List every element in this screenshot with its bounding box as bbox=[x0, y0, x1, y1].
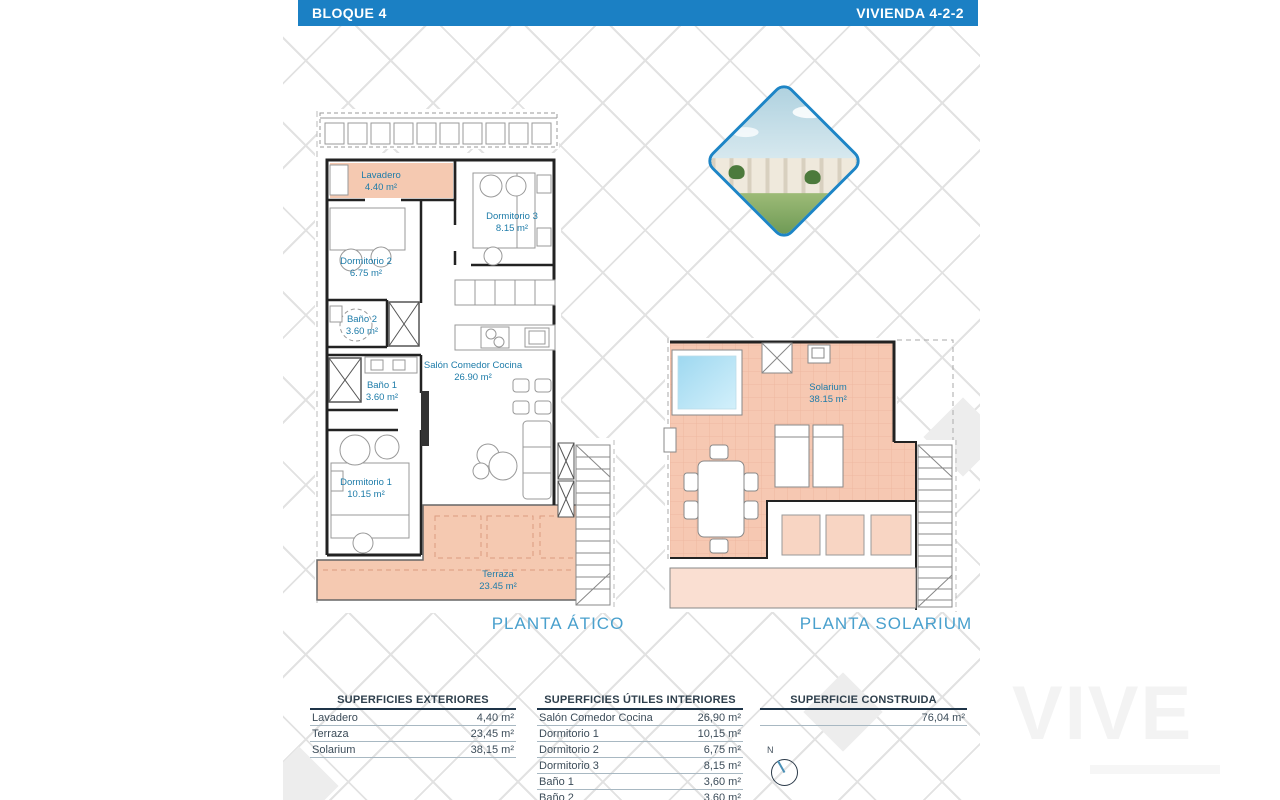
room-name: Dormitorio 3 bbox=[486, 211, 538, 222]
table-row: Terraza23,45 m² bbox=[310, 726, 516, 742]
table-row: Dormitorio 26,75 m² bbox=[537, 742, 743, 758]
table-superficies-interiores: SUPERFICIES ÚTILES INTERIORES Salón Come… bbox=[537, 694, 743, 800]
table-superficies-exteriores: SUPERFICIES EXTERIORES Lavadero4,40 m² T… bbox=[310, 694, 516, 758]
room-name: Dormitorio 1 bbox=[340, 477, 392, 488]
room-label-dormitorio2: Dormitorio 2 6.75 m² bbox=[340, 256, 392, 280]
table-title: SUPERFICIES ÚTILES INTERIORES bbox=[537, 694, 743, 710]
photo-cloud bbox=[732, 126, 758, 136]
lower-terrace-strip bbox=[670, 568, 916, 608]
room-area: 3.60 m² bbox=[346, 326, 378, 337]
room-area: 38.15 m² bbox=[809, 394, 847, 405]
room-area: 8.15 m² bbox=[496, 223, 528, 234]
outdoor-shower bbox=[762, 343, 792, 373]
room-area: 23.45 m² bbox=[479, 581, 517, 592]
compass-needle-icon bbox=[771, 759, 798, 786]
table-row: Baño 13,60 m² bbox=[537, 774, 743, 790]
room-area: 4.40 m² bbox=[365, 182, 397, 193]
room-label-salon: Salón Comedor Cocina 26.90 m² bbox=[424, 360, 522, 384]
photo-palm-tree bbox=[805, 170, 821, 184]
room-area: 6.75 m² bbox=[350, 268, 382, 279]
table-title: SUPERFICIES EXTERIORES bbox=[310, 694, 516, 710]
photo-palm-tree bbox=[729, 164, 745, 178]
pool bbox=[672, 350, 742, 415]
table-title: SUPERFICIE CONSTRUIDA bbox=[760, 694, 967, 710]
table-row: Dormitorio 110,15 m² bbox=[537, 726, 743, 742]
sun-loungers bbox=[775, 425, 843, 487]
atico-plan-title: PLANTA ÁTICO bbox=[492, 614, 625, 634]
room-area: 3.60 m² bbox=[366, 392, 398, 403]
title-bar: BLOQUE 4 VIVIENDA 4-2-2 bbox=[298, 0, 978, 26]
room-name: Baño 1 bbox=[367, 380, 397, 391]
table-row: 76,04 m² bbox=[760, 710, 967, 726]
room-label-banyo2: Baño 2 3.60 m² bbox=[346, 314, 378, 338]
planters bbox=[782, 515, 911, 555]
table-row: Dormitorio 38,15 m² bbox=[537, 758, 743, 774]
table-row: Baño 23,60 m² bbox=[537, 790, 743, 800]
pergola-backing bbox=[317, 109, 559, 149]
room-label-dormitorio3: Dormitorio 3 8.15 m² bbox=[486, 211, 538, 235]
ac-unit bbox=[664, 428, 676, 452]
tv-unit bbox=[421, 391, 429, 446]
room-name: Salón Comedor Cocina bbox=[424, 360, 522, 371]
room-label-terraza: Terraza 23.45 m² bbox=[479, 569, 517, 593]
room-label-solarium: Solarium 38.15 m² bbox=[809, 382, 847, 406]
compass-north-label: N bbox=[767, 745, 774, 755]
room-area: 26.90 m² bbox=[454, 372, 492, 383]
table-row: Solarium38,15 m² bbox=[310, 742, 516, 758]
room-name: Baño 2 bbox=[347, 314, 377, 325]
room-name: Solarium bbox=[809, 382, 847, 393]
solarium-floorplan bbox=[658, 333, 963, 618]
block-title: BLOQUE 4 bbox=[312, 5, 387, 21]
floorplan-sheet: BLOQUE 4 VIVIENDA 4-2-2 bbox=[0, 0, 1280, 800]
staircase bbox=[576, 440, 614, 608]
room-label-dormitorio1: Dormitorio 1 10.15 m² bbox=[340, 477, 392, 501]
dwelling-title: VIVIENDA 4-2-2 bbox=[856, 5, 964, 21]
room-area: 10.15 m² bbox=[347, 489, 385, 500]
room-label-banyo1: Baño 1 3.60 m² bbox=[366, 380, 398, 404]
staircase bbox=[918, 440, 956, 612]
room-name: Dormitorio 2 bbox=[340, 256, 392, 267]
outdoor-sink bbox=[808, 345, 830, 363]
room-name: Terraza bbox=[482, 569, 514, 580]
brand-watermark: VIVE bbox=[1012, 676, 1272, 752]
brand-watermark-subline bbox=[1090, 765, 1220, 774]
table-row: Lavadero4,40 m² bbox=[310, 710, 516, 726]
table-superficie-construida: SUPERFICIE CONSTRUIDA 76,04 m² bbox=[760, 694, 967, 726]
solarium-plan-title: PLANTA SOLARIUM bbox=[800, 614, 972, 634]
table-row: Salón Comedor Cocina26,90 m² bbox=[537, 710, 743, 726]
room-label-lavadero: Lavadero 4.40 m² bbox=[361, 170, 401, 194]
room-name: Lavadero bbox=[361, 170, 401, 181]
